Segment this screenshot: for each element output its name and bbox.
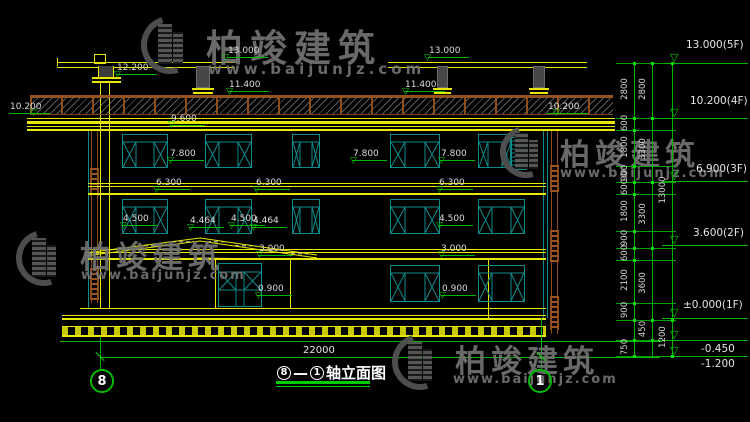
watermark-logo-building-icon [529,140,538,169]
level-marker: 3.000 [440,244,475,256]
window [478,265,525,302]
level-marker: 13.000 [428,46,469,58]
dim-tick-dot [651,62,654,65]
dim-tick-dot [671,62,674,65]
level-marker: 7.800 [352,149,387,161]
level-triangle-icon: ▽ [424,54,431,63]
column-capital [92,81,121,83]
dim-tick-dot [633,181,636,184]
title-label: 轴立面图 [326,362,386,383]
elevation-flag-label: 10.200(4F) [690,95,748,107]
elevation-flag-label: ±0.000(1F) [683,299,743,311]
railing-hatch-band [30,98,613,114]
level-triangle-icon: ▽ [153,186,160,195]
title-underline-thin [276,386,370,387]
watermark-logo-building-icon [47,245,56,277]
window [292,134,320,168]
roof-edge-tick [57,58,58,66]
level-marker: 6.300 [255,178,290,190]
dim-tick-dot [633,165,636,168]
dim-chain-value: 3300 [638,127,648,171]
window [205,134,252,168]
title-separator: — [293,364,308,382]
dim-tick-dot [633,302,636,305]
level-marker: 12.200 [116,63,157,75]
watermark-url: www.baijunjz.com [81,268,246,283]
overall-width-dimension: 22000 [303,345,335,356]
elevation-flag-label: -0.450 [701,343,735,355]
axis-bubble-8: 8 [90,369,114,393]
dim-tick-dot [651,319,654,322]
column-base-cap [193,92,213,94]
dim-tick-dot [651,117,654,120]
level-triangle-icon: ▽ [250,224,257,233]
level-marker: 4.464 [252,216,287,228]
watermark-logo-building-icon [423,349,432,381]
title-axis-end: 1 [310,366,324,380]
window [292,199,320,234]
level-triangle-icon: ▽ [228,222,235,231]
plinth-top-line [62,318,546,320]
roof-column [533,66,545,88]
dim-chain-value: 750 [620,325,630,369]
level-triangle-icon: ▽ [253,186,260,195]
elevation-flag-label: -1.200 [701,358,735,370]
window [390,199,440,234]
downpipe-bracket [550,165,559,192]
dim-tick-dot [633,117,636,120]
wall-base-line [80,308,546,309]
level-triangle-icon: ▽ [439,292,446,301]
dim-tick-dot [651,247,654,250]
level-marker: 7.800 [440,149,475,161]
level-marker: 3.000 [258,244,293,256]
level-triangle-icon: ▽ [438,251,445,260]
level-marker: 13.000 [227,46,268,58]
dim-tick-dot [633,319,636,322]
dim-tick-dot [651,339,654,342]
level-triangle-icon: ▽ [436,222,443,231]
dim-chain-line [672,63,673,356]
window [122,134,168,168]
level-triangle-icon: ▽ [167,157,174,166]
level-triangle-icon: ▽ [187,224,194,233]
axis-bubble-1: 1 [528,369,552,393]
column-base-cap [192,88,214,90]
dim-tick-dot [633,355,636,358]
downpipe-bracket [550,230,559,262]
level-marker: 7.800 [169,149,204,161]
downpipe-bracket [550,296,559,330]
elevation-flag-label: 3.600(2F) [693,227,744,239]
level-marker: 6.300 [438,178,473,190]
canopy-post [290,258,291,308]
dim-chain-value: 3300 [638,192,648,236]
title-axis-start: 8 [277,366,291,380]
title-underline-thick [276,381,370,384]
dim-tick-dot [671,319,674,322]
level-marker: 6.300 [155,178,190,190]
dim-tick-dot [633,129,636,132]
drawing-title: 8 — 1 轴立面图 [277,362,386,383]
downpipe-bracket [90,168,99,196]
axis-extension-left [100,337,101,370]
terrace-slab-beam [27,121,615,124]
column-base-cap [530,92,548,94]
watermark-logo-building-icon [173,32,183,64]
level-marker: 0.900 [441,284,476,296]
level-triangle-icon: ▽ [222,54,229,63]
level-triangle-icon: ▽ [553,109,560,118]
level-triangle-icon: ▽ [226,88,233,97]
watermark-logo-building-icon [515,133,528,169]
dim-tick-dot [633,339,636,342]
dim-tick-dot [633,259,636,262]
dim-tick-dot [633,193,636,196]
cad-elevation-drawing: 柏竣建筑 www.baijunjz.com 柏竣建筑 www.baijunjz.… [0,0,750,422]
watermark-logo-building-icon [408,342,422,381]
terrace-slab-line [27,118,615,119]
level-triangle-icon: ▽ [402,88,409,97]
level-marker: 4.464 [189,216,224,228]
level-marker: 4.500 [438,214,473,226]
dim-tick-dot [633,247,636,250]
dim-chain-line [634,63,635,356]
dim-chain-value: 3600 [638,261,648,305]
dim-chain-line [652,63,653,356]
plinth-top-line [62,315,546,316]
dim-chain-value: 2800 [638,67,648,111]
dim-tick-dot [651,181,654,184]
column-base-cap [529,88,549,90]
level-marker: 4.500 [122,214,157,226]
dim-chain-value: 1200 [658,315,668,359]
elevation-flag-label: 6.900(3F) [696,163,747,175]
level-triangle-icon: ▽ [168,121,175,130]
level-marker: 9.600 [170,114,205,126]
level-triangle-icon: ▽ [114,71,121,80]
watermark-logo-building-icon [158,24,172,64]
dim-chain-value: 450 [638,307,648,351]
dim-tick-dot [633,62,636,65]
level-triangle-icon: ▽ [255,292,262,301]
column-base-cap [434,92,451,94]
level-triangle-icon: ▽ [436,186,443,195]
level-marker: 11.400 [404,80,445,92]
railing-bottom-rail [30,114,613,115]
level-triangle-icon: ▽ [120,222,127,231]
roof-hatch-box [94,54,106,64]
level-marker: 0.900 [257,284,292,296]
level-marker: 11.400 [228,80,269,92]
roof-column [98,66,114,77]
window [390,134,440,168]
elevation-flag-label: 13.000(5F) [686,39,744,51]
dim-tick-dot [671,355,674,358]
level-triangle-icon: ▽ [438,157,445,166]
watermark-logo-building-icon [32,238,46,277]
dim-chain-value: 13000 [658,168,668,212]
level-triangle-icon: ▽ [256,251,263,260]
window [390,265,440,302]
window [478,199,525,234]
dim-tick-dot [633,230,636,233]
level-triangle-icon: ▽ [350,157,357,166]
level-triangle-icon: ▽ [30,109,37,118]
watermark-url: www.baijunjz.com [208,60,425,78]
